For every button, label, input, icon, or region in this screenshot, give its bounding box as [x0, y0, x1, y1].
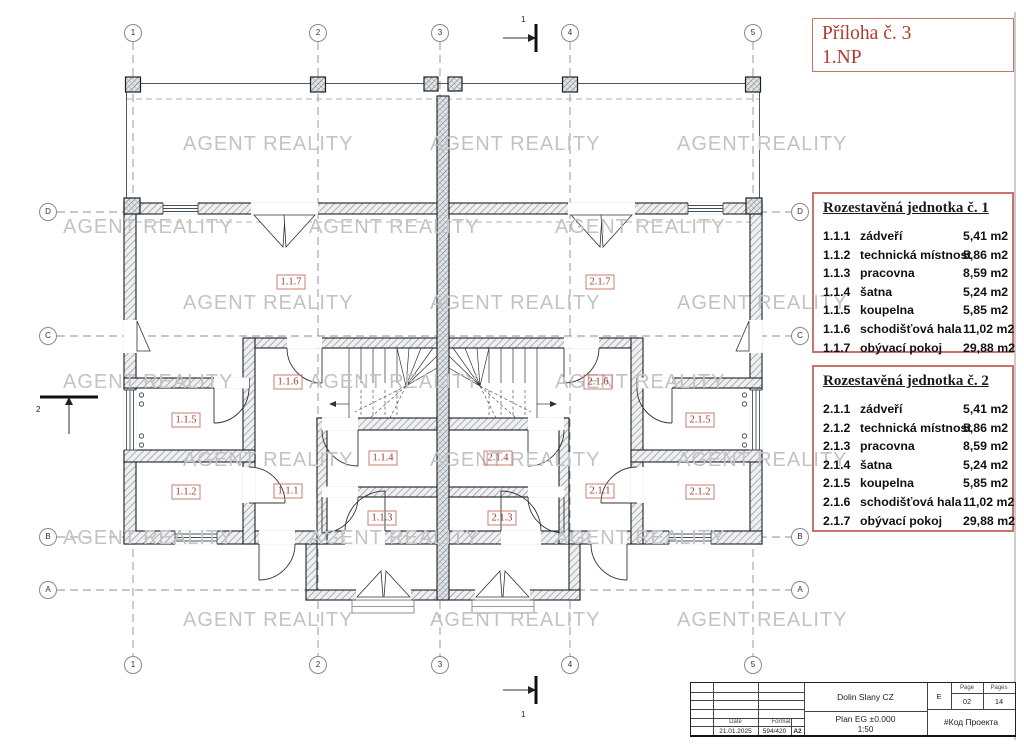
attachment-line-1: Příloha č. 3 — [822, 22, 1004, 46]
unit-2-room-row: 2.1.7obývací pokoj29,88 m2 — [823, 512, 1003, 531]
unit-1-room-row: 1.1.3pracovna8,59 m2 — [823, 264, 1003, 283]
title-block-project: Dolin Slany CZ — [804, 692, 927, 702]
unit-1-title: Rozestavěná jednotka č. 1 — [823, 200, 1003, 217]
room-label-1-1-7: 1.1.7 — [277, 275, 306, 290]
grid-bubble-col-1-top: 1 — [124, 24, 142, 42]
title-block-drawing: Plan EG ±0.000 — [804, 714, 927, 724]
room-label-2-1-4: 2.1.4 — [484, 451, 513, 466]
section-label-2: 2 — [36, 405, 41, 414]
title-block-format-size: A2 — [791, 728, 804, 735]
attachment-note-box: Příloha č. 3 1.NP — [812, 18, 1014, 72]
grid-bubble-row-d-left: D — [39, 203, 57, 221]
stairs-left — [329, 348, 437, 418]
title-block-page-label: Page — [951, 685, 983, 691]
unit-1-room-row: 1.1.1zádveří5,41 m2 — [823, 227, 1003, 246]
stairs-right — [449, 348, 557, 418]
unit-1-room-row: 1.1.6schodišťová hala11,02 m2 — [823, 320, 1003, 339]
grid-bubble-row-b-right: B — [791, 528, 809, 546]
title-block: Date Format 21.01.2025 594/420 A2 Dolin … — [690, 682, 1016, 737]
section-marker-left: 2 — [36, 397, 98, 434]
drawing-sheet: 1 1 2 AGENT REALITY AGENT REALITY AGENT … — [0, 0, 1024, 744]
grid-bubble-row-d-right: D — [791, 203, 809, 221]
section-marker-top: 1 — [503, 15, 536, 52]
room-label-2-1-3: 2.1.3 — [488, 511, 517, 526]
grid-bubble-col-2-top: 2 — [309, 24, 327, 42]
unit-2-info-box: Rozestavěná jednotka č. 2 2.1.1zádveří5,… — [812, 365, 1014, 532]
unit-2-room-row: 2.1.3pracovna8,59 m2 — [823, 437, 1003, 456]
room-label-1-1-1: 1.1.1 — [274, 484, 303, 499]
section-label-1-bottom: 1 — [521, 710, 526, 719]
section-label-1-top: 1 — [521, 15, 526, 24]
room-label-2-1-7: 2.1.7 — [586, 275, 615, 290]
grid-bubble-row-c-right: C — [791, 327, 809, 345]
room-label-2-1-1: 2.1.1 — [586, 484, 615, 499]
grid-bubble-col-4-top: 4 — [561, 24, 579, 42]
grid-bubble-col-3-top: 3 — [431, 24, 449, 42]
grid-bubble-col-4-bottom: 4 — [561, 656, 579, 674]
room-label-2-1-2: 2.1.2 — [686, 485, 715, 500]
unit-1-room-row: 1.1.7obývací pokoj29,88 m2 — [823, 339, 1003, 358]
grid-lines — [57, 42, 791, 656]
entrance-steps — [352, 600, 534, 613]
grid-bubble-col-5-bottom: 5 — [744, 656, 762, 674]
title-block-project-code: #Код Проекта — [927, 717, 1015, 727]
room-label-1-1-4: 1.1.4 — [369, 451, 398, 466]
room-label-2-1-5: 2.1.5 — [686, 413, 715, 428]
title-block-format: 594/420 — [758, 728, 791, 735]
title-block-scale: 1:50 — [804, 725, 927, 734]
room-label-1-1-5: 1.1.5 — [172, 413, 201, 428]
title-block-page: 02 — [951, 697, 983, 706]
room-label-1-1-2: 1.1.2 — [172, 485, 201, 500]
room-label-1-1-3: 1.1.3 — [368, 511, 397, 526]
unit-2-room-row: 2.1.2technická místnost5,86 m2 — [823, 419, 1003, 438]
section-marker-bottom: 1 — [503, 676, 536, 719]
title-block-revision: E — [927, 692, 951, 701]
grid-bubble-row-a-right: A — [791, 581, 809, 599]
room-label-1-1-6: 1.1.6 — [274, 375, 303, 390]
title-block-format-label: Format — [758, 719, 804, 725]
unit-2-title: Rozestavěná jednotka č. 2 — [823, 373, 1003, 390]
grid-bubble-row-b-left: B — [39, 528, 57, 546]
unit-1-room-row: 1.1.4šatna5,24 m2 — [823, 283, 1003, 302]
title-block-pages-label: Pages — [983, 685, 1015, 691]
terrace-columns — [126, 77, 761, 92]
unit-1-info-box: Rozestavěná jednotka č. 1 1.1.1zádveří5,… — [812, 192, 1014, 353]
grid-bubble-col-5-top: 5 — [744, 24, 762, 42]
grid-bubble-col-2-bottom: 2 — [309, 656, 327, 674]
unit-2-room-row: 2.1.1zádveří5,41 m2 — [823, 400, 1003, 419]
grid-bubble-row-a-left: A — [39, 581, 57, 599]
title-block-pages: 14 — [983, 697, 1015, 706]
unit-2-room-row: 2.1.6schodišťová hala11,02 m2 — [823, 493, 1003, 512]
room-label-2-1-6: 2.1.6 — [584, 375, 613, 390]
unit-2-room-row: 2.1.5koupelna5,85 m2 — [823, 474, 1003, 493]
title-block-date-label: Date — [713, 719, 758, 725]
grid-bubble-col-3-bottom: 3 — [431, 656, 449, 674]
title-block-date: 21.01.2025 — [713, 728, 758, 735]
unit-1-room-row: 1.1.5koupelna5,85 m2 — [823, 301, 1003, 320]
unit-1-room-row: 1.1.2technická místnost5,86 m2 — [823, 246, 1003, 265]
grid-bubble-row-c-left: C — [39, 327, 57, 345]
party-wall — [437, 96, 449, 600]
unit-2-room-row: 2.1.4šatna5,24 m2 — [823, 456, 1003, 475]
attachment-line-2: 1.NP — [822, 46, 1004, 70]
grid-bubble-col-1-bottom: 1 — [124, 656, 142, 674]
